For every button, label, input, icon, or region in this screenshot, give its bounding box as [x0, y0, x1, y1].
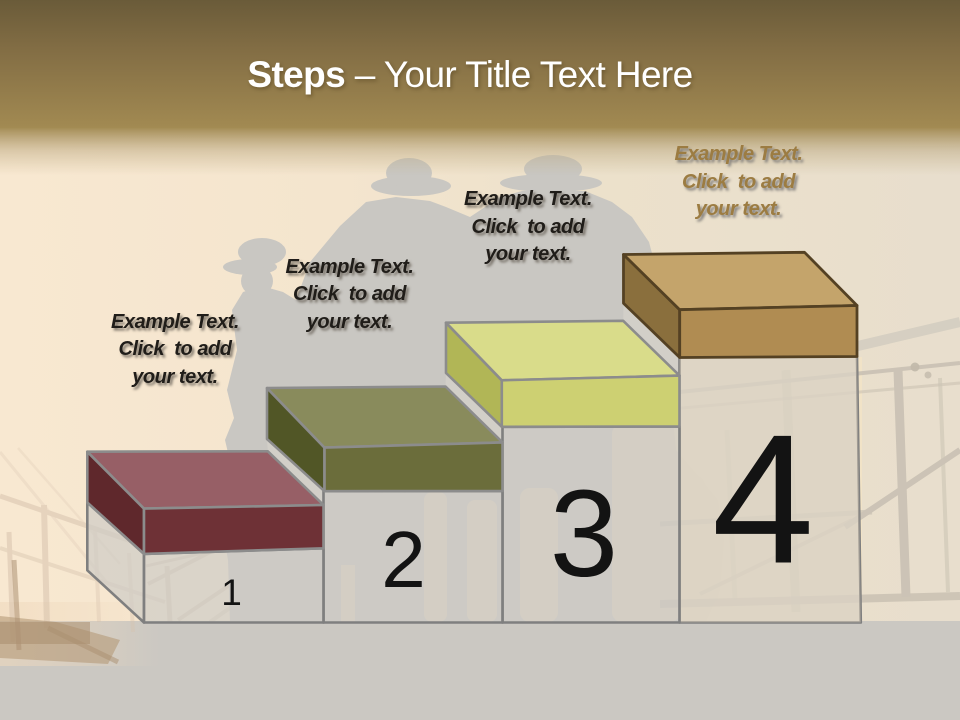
svg-text:4: 4: [712, 396, 814, 602]
svg-text:1: 1: [221, 572, 242, 613]
svg-text:2: 2: [381, 515, 426, 604]
svg-text:3: 3: [550, 466, 618, 603]
